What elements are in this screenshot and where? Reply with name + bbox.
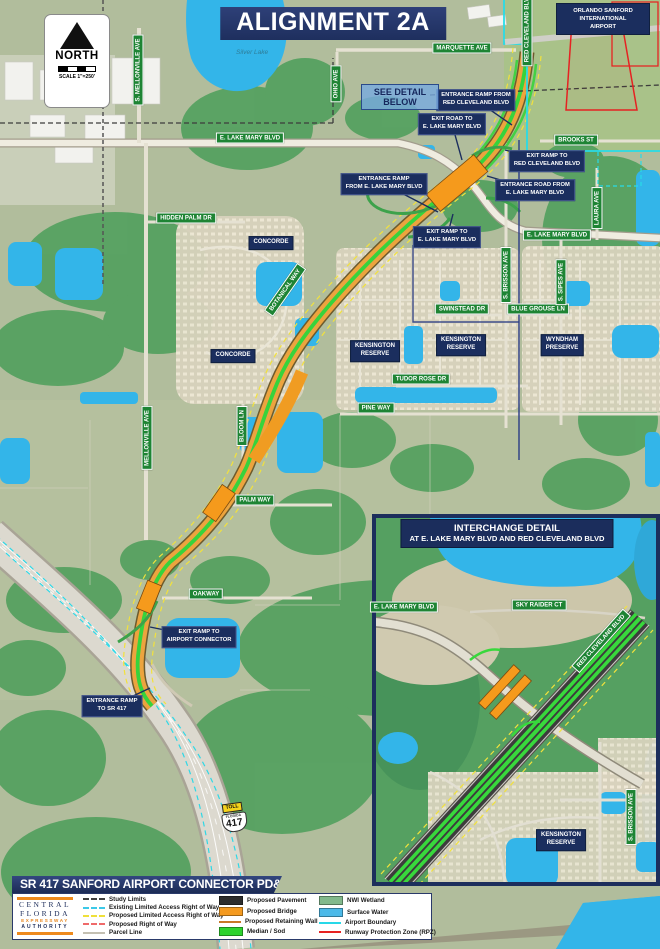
place-label: WYNDHAM PRESERVE <box>541 334 584 356</box>
street-label: SWINSTEAD DR <box>435 304 489 315</box>
place-label: CONCORDE <box>248 236 293 250</box>
legend-swatch <box>219 896 243 905</box>
street-label: BROOKS ST <box>554 135 598 146</box>
street-label: S. MELLONVILLE AVE <box>133 34 144 105</box>
legend-swatch <box>219 921 241 923</box>
legend-label: Proposed Retaining Wall <box>245 918 318 925</box>
place-label: KENSINGTON RESERVE <box>350 340 400 362</box>
callout: EXIT RAMP TO E. LAKE MARY BLVD <box>413 226 481 248</box>
cfx-logo: CENTRAL FLORIDA EXPRESSWAY AUTHORITY <box>17 896 73 936</box>
legend-item: Parcel Line <box>83 929 217 936</box>
legend-label: Parcel Line <box>109 929 142 936</box>
legend-item: Existing Limited Access Right of Way <box>83 904 217 911</box>
legend-swatch <box>83 907 105 909</box>
sheet-title-banner: SR 417 SANFORD AIRPORT CONNECTOR PD&E ST… <box>12 876 282 893</box>
street-label: TUDOR ROSE DR <box>392 374 450 385</box>
north-label: NORTH <box>45 50 109 62</box>
see-detail-banner: SEE DETAIL BELOW <box>361 84 439 110</box>
street-label: BLOOM LN <box>237 406 248 446</box>
inset-title: INTERCHANGE DETAIL AT E. LAKE MARY BLVD … <box>400 519 613 548</box>
legend-item: Runway Protection Zone (RPZ) <box>319 929 429 936</box>
street-label: S. SIPES AVE <box>556 259 567 305</box>
street-label: SKY RAIDER CT <box>512 600 567 611</box>
street-label: E. LAKE MARY BLVD <box>523 230 591 241</box>
legend-label: Surface Water <box>347 909 388 916</box>
street-label: LAURA AVE <box>592 187 603 229</box>
callout: ENTRANCE RAMP TO SR 417 <box>82 695 143 717</box>
street-label: S. BRISSON AVE <box>626 789 637 845</box>
legend-label: Study Limits <box>109 896 146 903</box>
legend-label: Proposed Pavement <box>247 897 307 904</box>
legend-item: NWI Wetland <box>319 896 429 905</box>
legend-column-2: Proposed PavementProposed BridgeProposed… <box>219 895 317 937</box>
legend-item: Airport Boundary <box>319 919 429 926</box>
scale-text: SCALE 1"=250' <box>45 74 109 80</box>
legend-label: Proposed Limited Access Right of Way <box>109 912 224 919</box>
legend-item: Proposed Bridge <box>219 907 317 916</box>
legend-item: Proposed Pavement <box>219 896 317 905</box>
map-sheet: ALIGNMENT 2A NORTH SCALE 1"=250' ORLANDO… <box>0 0 660 949</box>
north-arrow-icon <box>60 22 94 49</box>
legend-label: Airport Boundary <box>345 919 396 926</box>
street-label: E. LAKE MARY BLVD <box>216 133 284 144</box>
callout: ENTRANCE RAMP FROM E. LAKE MARY BLVD <box>341 173 428 195</box>
legend-item: Proposed Limited Access Right of Way <box>83 912 217 919</box>
legend-label: Proposed Bridge <box>247 908 297 915</box>
legend-item: Proposed Right of Way <box>83 921 217 928</box>
street-label: MARQUETTE AVE <box>432 43 491 54</box>
callout: EXIT ROAD TO E. LAKE MARY BLVD <box>418 113 486 135</box>
street-label: PALM WAY <box>235 495 274 506</box>
street-label: PINE WAY <box>358 403 395 414</box>
toll-banner: TOLL <box>221 802 243 813</box>
place-label: KENSINGTON RESERVE <box>436 334 486 356</box>
legend-label: Existing Limited Access Right of Way <box>109 904 219 911</box>
place-label: KENSINGTON RESERVE <box>536 829 586 851</box>
street-label: HIDDEN PALM DR <box>156 213 216 224</box>
north-arrow-box: NORTH SCALE 1"=250' <box>44 14 110 108</box>
legend-panel: CENTRAL FLORIDA EXPRESSWAY AUTHORITY Stu… <box>12 893 432 940</box>
street-label: S. BRISSON AVE <box>501 247 512 303</box>
legend-swatch <box>83 932 105 934</box>
street-label: RED CLEVELAND BLVD <box>522 0 533 66</box>
legend-swatch <box>83 915 105 917</box>
legend-item: Surface Water <box>319 908 429 917</box>
place-label: CONCORDE <box>210 349 255 363</box>
callout: ENTRANCE RAMP FROM RED CLEVELAND BLVD <box>436 89 515 111</box>
legend-item: Study Limits <box>83 896 217 903</box>
legend-label: Runway Protection Zone (RPZ) <box>345 929 436 936</box>
legend-column-3: NWI WetlandSurface WaterAirport Boundary… <box>319 895 429 937</box>
legend-swatch <box>319 922 341 924</box>
street-label: OAKWAY <box>189 589 223 600</box>
legend-label: NWI Wetland <box>347 897 385 904</box>
silver-lake-label: Silver Lake <box>236 49 268 56</box>
legend-swatch <box>319 908 343 917</box>
callout: EXIT RAMP TO AIRPORT CONNECTOR <box>162 626 237 648</box>
legend-swatch <box>219 927 243 936</box>
callout: ENTRANCE ROAD FROM E. LAKE MARY BLVD <box>495 179 575 201</box>
toll-417-shield: TOLL FLORIDA 417 <box>217 793 250 833</box>
legend-item: Proposed Retaining Wall <box>219 918 317 925</box>
legend-label: Proposed Right of Way <box>109 921 177 928</box>
legend-swatch <box>319 896 343 905</box>
legend-item: Median / Sod <box>219 927 317 936</box>
street-label: MELLONVILLE AVE <box>142 406 153 470</box>
street-label: OHIO AVE <box>331 66 342 103</box>
inset-detail-map <box>360 516 660 898</box>
legend-swatch <box>83 923 105 925</box>
legend-swatch <box>219 907 243 916</box>
scale-bar <box>58 66 96 72</box>
legend-swatch <box>83 898 105 900</box>
legend-column-1: Study LimitsExisting Limited Access Righ… <box>83 895 217 937</box>
street-label: E. LAKE MARY BLVD <box>370 602 438 613</box>
airport-label: ORLANDO SANFORD INTERNATIONAL AIRPORT <box>556 3 650 35</box>
legend-swatch <box>319 931 341 933</box>
page-title: ALIGNMENT 2A <box>220 7 446 40</box>
callout: EXIT RAMP TO RED CLEVELAND BLVD <box>509 150 585 172</box>
legend-label: Median / Sod <box>247 928 285 935</box>
